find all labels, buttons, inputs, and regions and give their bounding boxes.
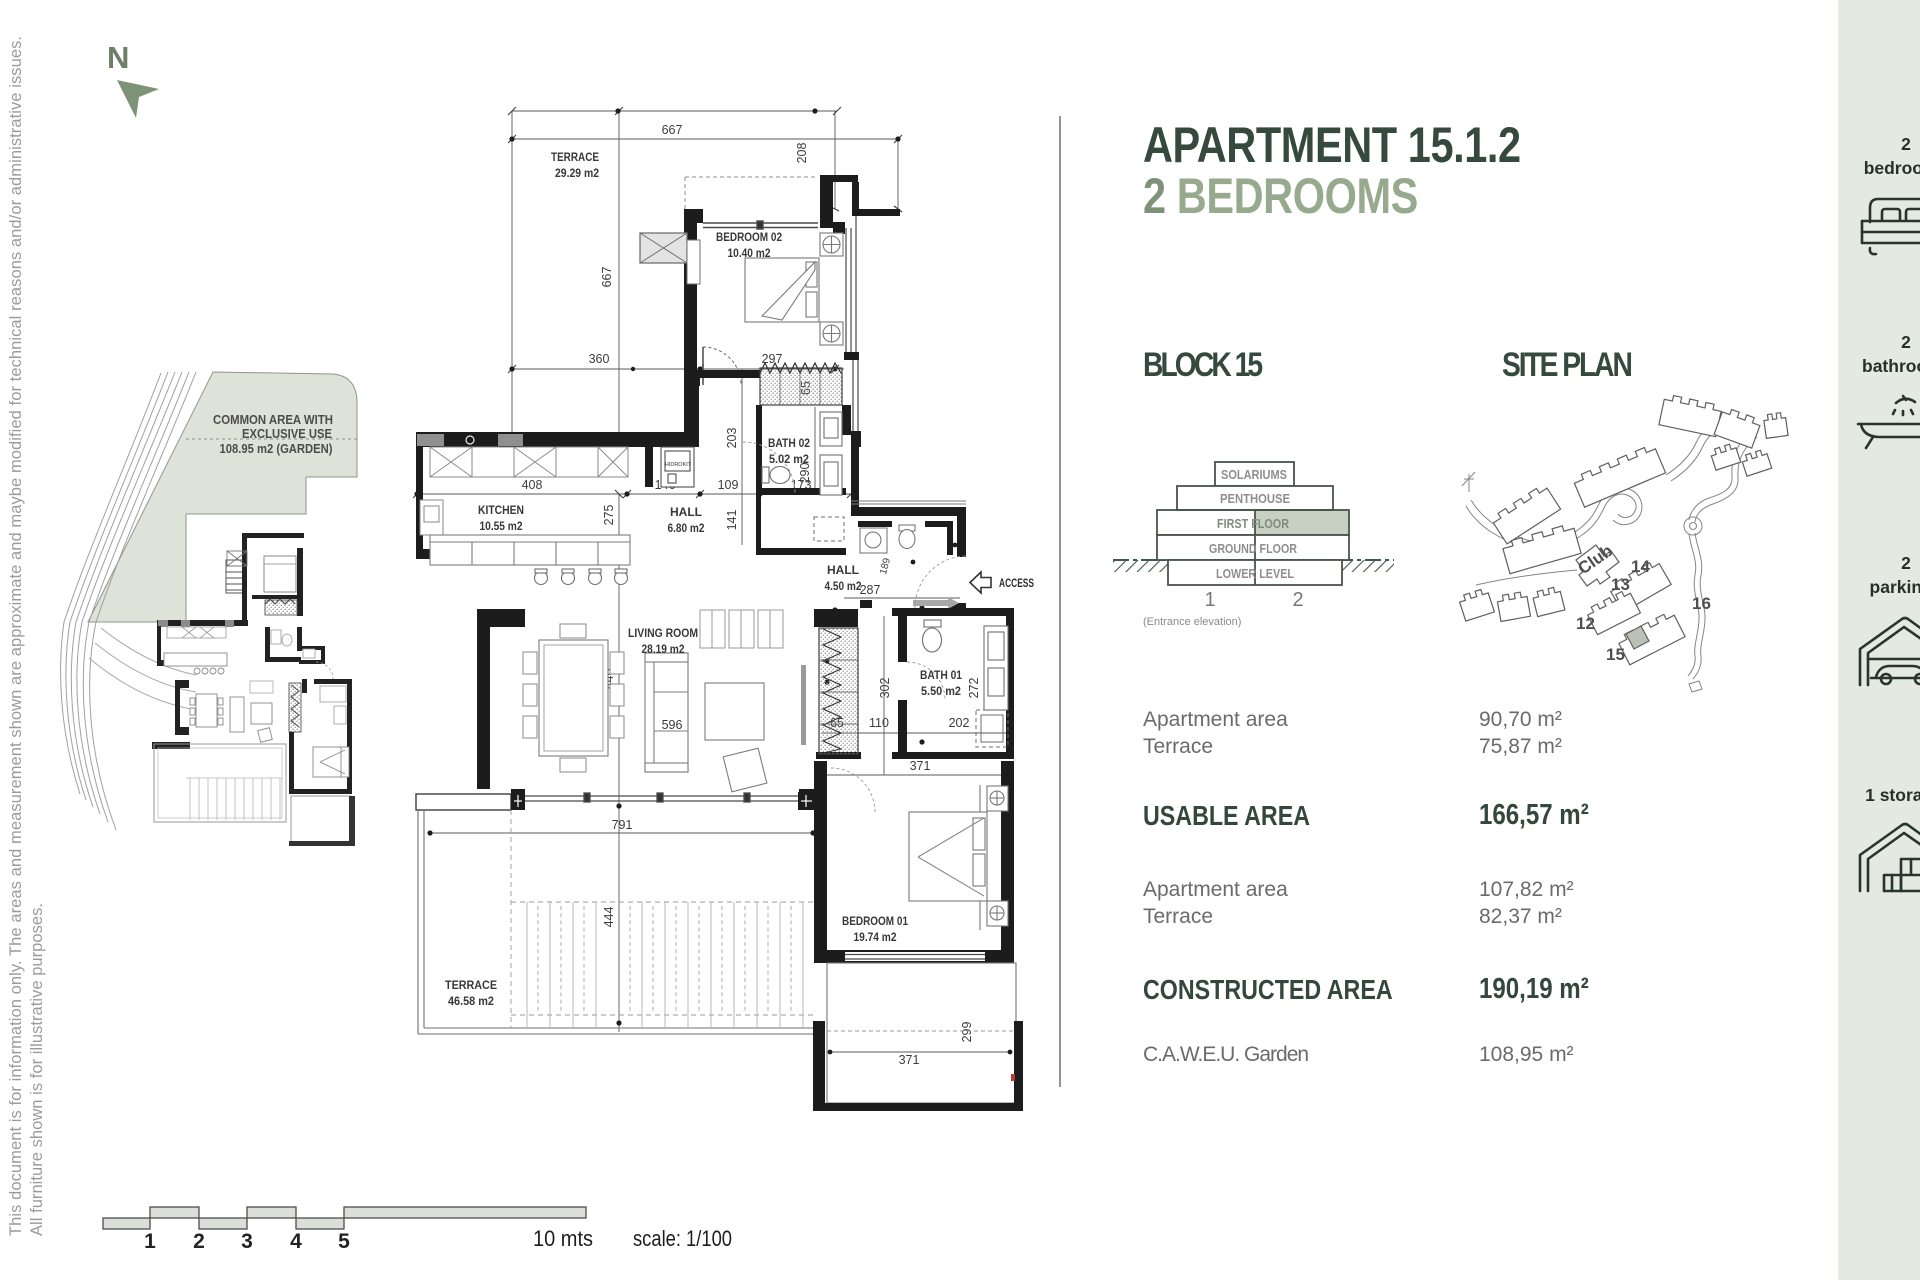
svg-text:14: 14 (1631, 557, 1650, 576)
svg-text:2: 2 (193, 1230, 205, 1253)
svg-text:TERRACE: TERRACE (551, 150, 599, 164)
svg-text:ACCESS: ACCESS (999, 578, 1034, 590)
svg-text:371: 371 (910, 759, 931, 773)
svg-text:46.58 m2: 46.58 m2 (448, 994, 494, 1008)
svg-text:LOWER LEVEL: LOWER LEVEL (1216, 567, 1294, 581)
svg-text:272: 272 (967, 678, 981, 699)
svg-text:GROUND FLOOR: GROUND FLOOR (1209, 542, 1297, 556)
svg-text:10.55 m2: 10.55 m2 (480, 519, 523, 533)
svg-text:109: 109 (718, 478, 739, 492)
svg-text:275: 275 (602, 505, 616, 526)
svg-text:5.02 m2: 5.02 m2 (769, 452, 809, 466)
svg-text:KITCHEN: KITCHEN (478, 503, 524, 517)
svg-text:scale: 1/100: scale: 1/100 (633, 1226, 732, 1251)
svg-text:This document is for informati: This document is for information only. T… (7, 36, 25, 1236)
svg-text:28.19 m2: 28.19 m2 (642, 642, 685, 656)
svg-text:TERRACE: TERRACE (445, 978, 497, 992)
svg-text:BATH 01: BATH 01 (920, 668, 962, 682)
svg-text:791: 791 (612, 818, 633, 832)
svg-text:LIVING ROOM: LIVING ROOM (628, 626, 698, 640)
svg-text:667: 667 (662, 123, 683, 137)
svg-text:16: 16 (1692, 594, 1711, 613)
svg-text:BEDROOM 01: BEDROOM 01 (842, 914, 908, 928)
svg-text:SOLARIUMS: SOLARIUMS (1221, 468, 1287, 482)
svg-text:10.40 m2: 10.40 m2 (728, 246, 771, 260)
svg-text:HIDROKIT: HIDROKIT (665, 462, 692, 468)
svg-text:HALL: HALL (670, 505, 702, 519)
svg-text:BEDROOM 02: BEDROOM 02 (716, 230, 782, 244)
svg-text:FIRST FLOOR: FIRST FLOOR (1217, 517, 1289, 531)
svg-text:371: 371 (899, 1053, 920, 1067)
svg-text:29.29 m2: 29.29 m2 (555, 166, 599, 180)
svg-text:1: 1 (144, 1230, 156, 1253)
svg-text:203: 203 (725, 428, 739, 449)
svg-text:3: 3 (241, 1230, 253, 1253)
svg-text:COMMON AREA WITH: COMMON AREA WITH (213, 412, 333, 427)
svg-text:5: 5 (338, 1230, 350, 1253)
svg-text:BATH 02: BATH 02 (768, 436, 810, 450)
svg-text:299: 299 (960, 1022, 974, 1043)
svg-text:HALL: HALL (827, 563, 859, 577)
svg-text:189: 189 (878, 556, 893, 575)
svg-text:19.74 m2: 19.74 m2 (854, 930, 897, 944)
svg-text:EXCLUSIVE USE: EXCLUSIVE USE (242, 426, 332, 441)
svg-text:12: 12 (1576, 614, 1595, 633)
svg-text:110: 110 (869, 716, 889, 730)
svg-text:287: 287 (860, 583, 881, 597)
svg-text:6.80 m2: 6.80 m2 (668, 521, 705, 535)
svg-text:667: 667 (600, 267, 614, 288)
svg-text:5.50 m2: 5.50 m2 (921, 684, 961, 698)
svg-text:10 mts: 10 mts (533, 1226, 593, 1251)
svg-text:1: 1 (1204, 589, 1215, 611)
svg-text:360: 360 (589, 352, 610, 366)
svg-text:208: 208 (795, 143, 809, 164)
svg-text:N: N (107, 40, 129, 75)
svg-text:2: 2 (1292, 589, 1303, 611)
svg-text:PENTHOUSE: PENTHOUSE (1220, 492, 1290, 506)
svg-text:13: 13 (1611, 575, 1630, 594)
svg-text:4: 4 (290, 1230, 302, 1253)
svg-text:4.50 m2: 4.50 m2 (825, 579, 862, 593)
svg-text:108.95 m2 (GARDEN): 108.95 m2 (GARDEN) (220, 441, 333, 456)
svg-text:444: 444 (602, 907, 616, 928)
svg-text:302: 302 (878, 678, 892, 699)
svg-text:202: 202 (949, 716, 970, 730)
svg-text:All furniture shown is for ill: All furniture shown is for illustrative … (28, 903, 46, 1236)
svg-text:596: 596 (662, 718, 683, 732)
svg-text:(Entrance elevation): (Entrance elevation) (1143, 616, 1241, 628)
svg-text:15: 15 (1606, 645, 1625, 664)
svg-text:408: 408 (522, 478, 543, 492)
svg-text:141: 141 (725, 510, 739, 531)
